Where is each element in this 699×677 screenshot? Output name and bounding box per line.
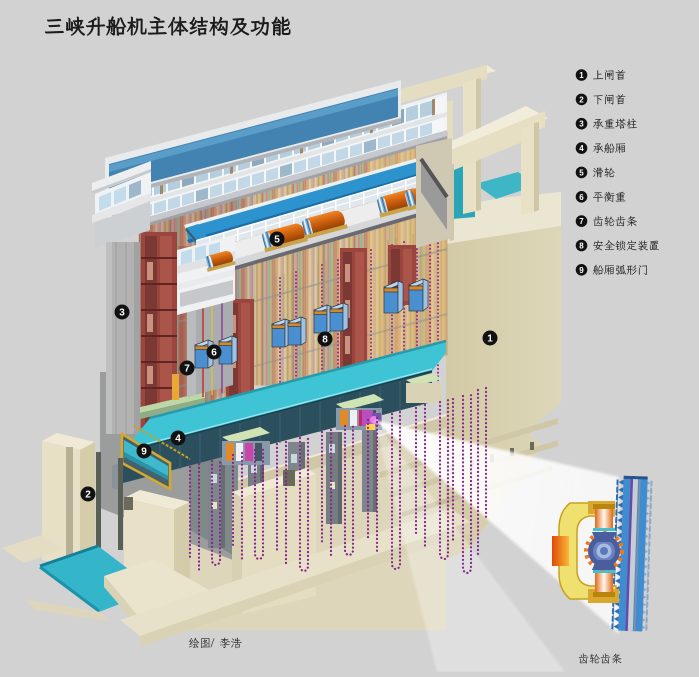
svg-text:9: 9 — [141, 447, 147, 458]
svg-text:5: 5 — [579, 168, 584, 177]
svg-text:3: 3 — [119, 308, 125, 319]
svg-text:2: 2 — [579, 95, 584, 104]
svg-text:5: 5 — [274, 235, 280, 246]
svg-text:6: 6 — [579, 193, 584, 202]
svg-text:3: 3 — [579, 120, 584, 129]
svg-text:1: 1 — [579, 71, 584, 80]
svg-text:4: 4 — [579, 144, 584, 153]
svg-text:7: 7 — [579, 217, 584, 226]
svg-text:8: 8 — [322, 335, 328, 346]
svg-text:7: 7 — [184, 364, 190, 375]
svg-text:8: 8 — [579, 242, 584, 251]
svg-text:6: 6 — [211, 348, 217, 359]
svg-text:1: 1 — [487, 334, 493, 345]
svg-text:9: 9 — [579, 266, 584, 275]
svg-text:4: 4 — [175, 434, 181, 445]
svg-text:2: 2 — [85, 490, 91, 501]
